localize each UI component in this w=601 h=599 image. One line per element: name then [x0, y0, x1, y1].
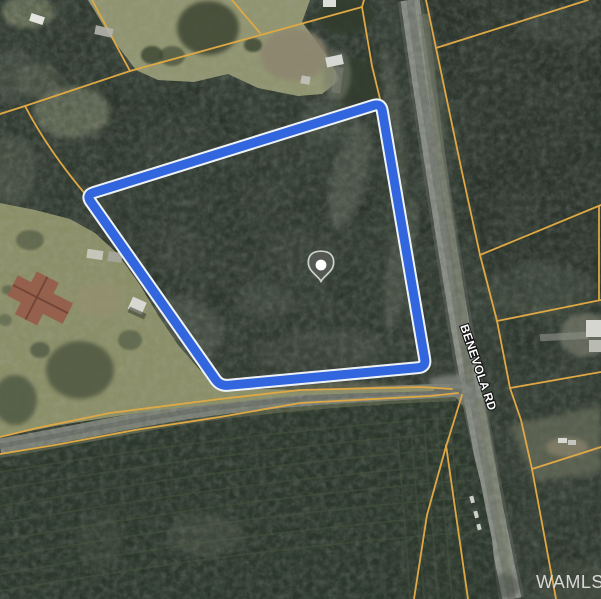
svg-text:WAMLS: WAMLS — [536, 572, 601, 592]
